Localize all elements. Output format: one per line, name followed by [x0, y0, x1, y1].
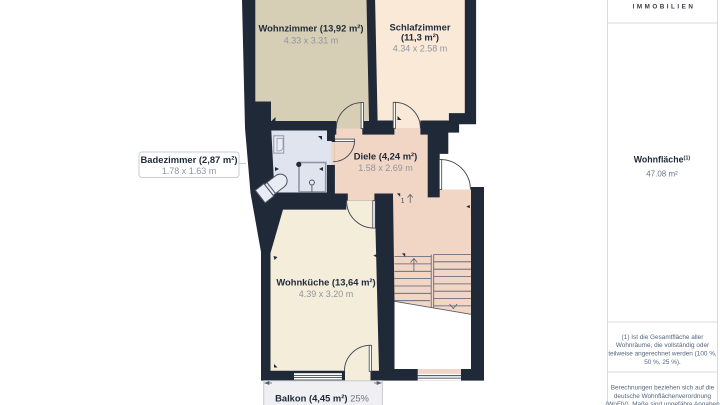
svg-text:Wohnzimmer (13,92 m²): Wohnzimmer (13,92 m²) — [258, 23, 363, 34]
svg-text:Wohnfläche(1): Wohnfläche(1) — [634, 155, 691, 165]
svg-text:1.78 x 1.63 m: 1.78 x 1.63 m — [162, 166, 217, 176]
svg-text:4.34 x 2.58 m: 4.34 x 2.58 m — [393, 44, 448, 54]
svg-text:Badezimmer (2,87 m²): Badezimmer (2,87 m²) — [141, 154, 238, 165]
svg-text:4.39 x 3.20 m: 4.39 x 3.20 m — [299, 289, 354, 299]
svg-text:1.58 x 2.69 m: 1.58 x 2.69 m — [358, 163, 413, 173]
svg-text:47.08 m²: 47.08 m² — [646, 170, 678, 179]
svg-text:Diele (4,24 m²): Diele (4,24 m²) — [354, 151, 418, 162]
svg-text:teilweise angerechnet werden (: teilweise angerechnet werden (100 %, — [608, 351, 717, 358]
svg-text:Balkon (4,45 m²) 25%: Balkon (4,45 m²) 25% — [275, 393, 369, 404]
svg-text:deutsche Wohnflächenverordnung: deutsche Wohnflächenverordnung — [614, 393, 712, 400]
svg-text:50 %, 25 %).: 50 %, 25 %). — [644, 359, 681, 366]
svg-text:IMMOBILIEN: IMMOBILIEN — [633, 4, 696, 11]
svg-text:(WoFlV). Maße sind ungefähre A: (WoFlV). Maße sind ungefähre Angaben — [605, 401, 720, 405]
svg-text:Wohnräume, die vollständig ode: Wohnräume, die vollständig oder — [616, 342, 710, 349]
svg-text:Berechnungen beziehen sich auf: Berechnungen beziehen sich auf die — [611, 384, 715, 391]
svg-text:(1) Ist die Gesamtfläche aller: (1) Ist die Gesamtfläche aller — [622, 334, 705, 341]
svg-text:(11,3 m²): (11,3 m²) — [401, 32, 439, 43]
svg-text:Wohnküche (13,64 m²): Wohnküche (13,64 m²) — [276, 277, 375, 288]
svg-text:4.33 x 3.31 m: 4.33 x 3.31 m — [284, 36, 339, 46]
